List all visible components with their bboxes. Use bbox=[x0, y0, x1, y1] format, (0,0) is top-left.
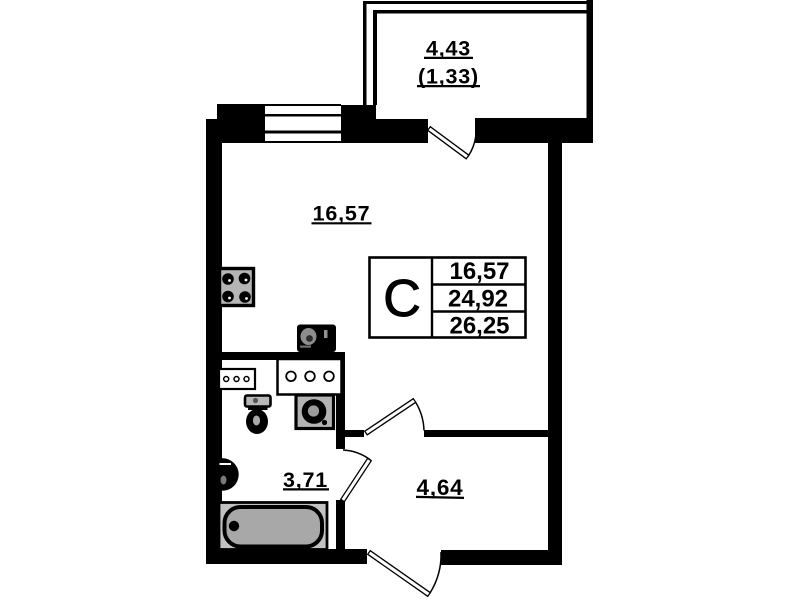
svg-text:С: С bbox=[383, 270, 421, 328]
svg-text:16,57: 16,57 bbox=[449, 258, 509, 285]
svg-text:26,25: 26,25 bbox=[449, 313, 509, 340]
svg-text:24,92: 24,92 bbox=[448, 286, 508, 313]
svg-text:(1,33): (1,33) bbox=[418, 65, 479, 89]
svg-text:16,57: 16,57 bbox=[313, 202, 371, 226]
